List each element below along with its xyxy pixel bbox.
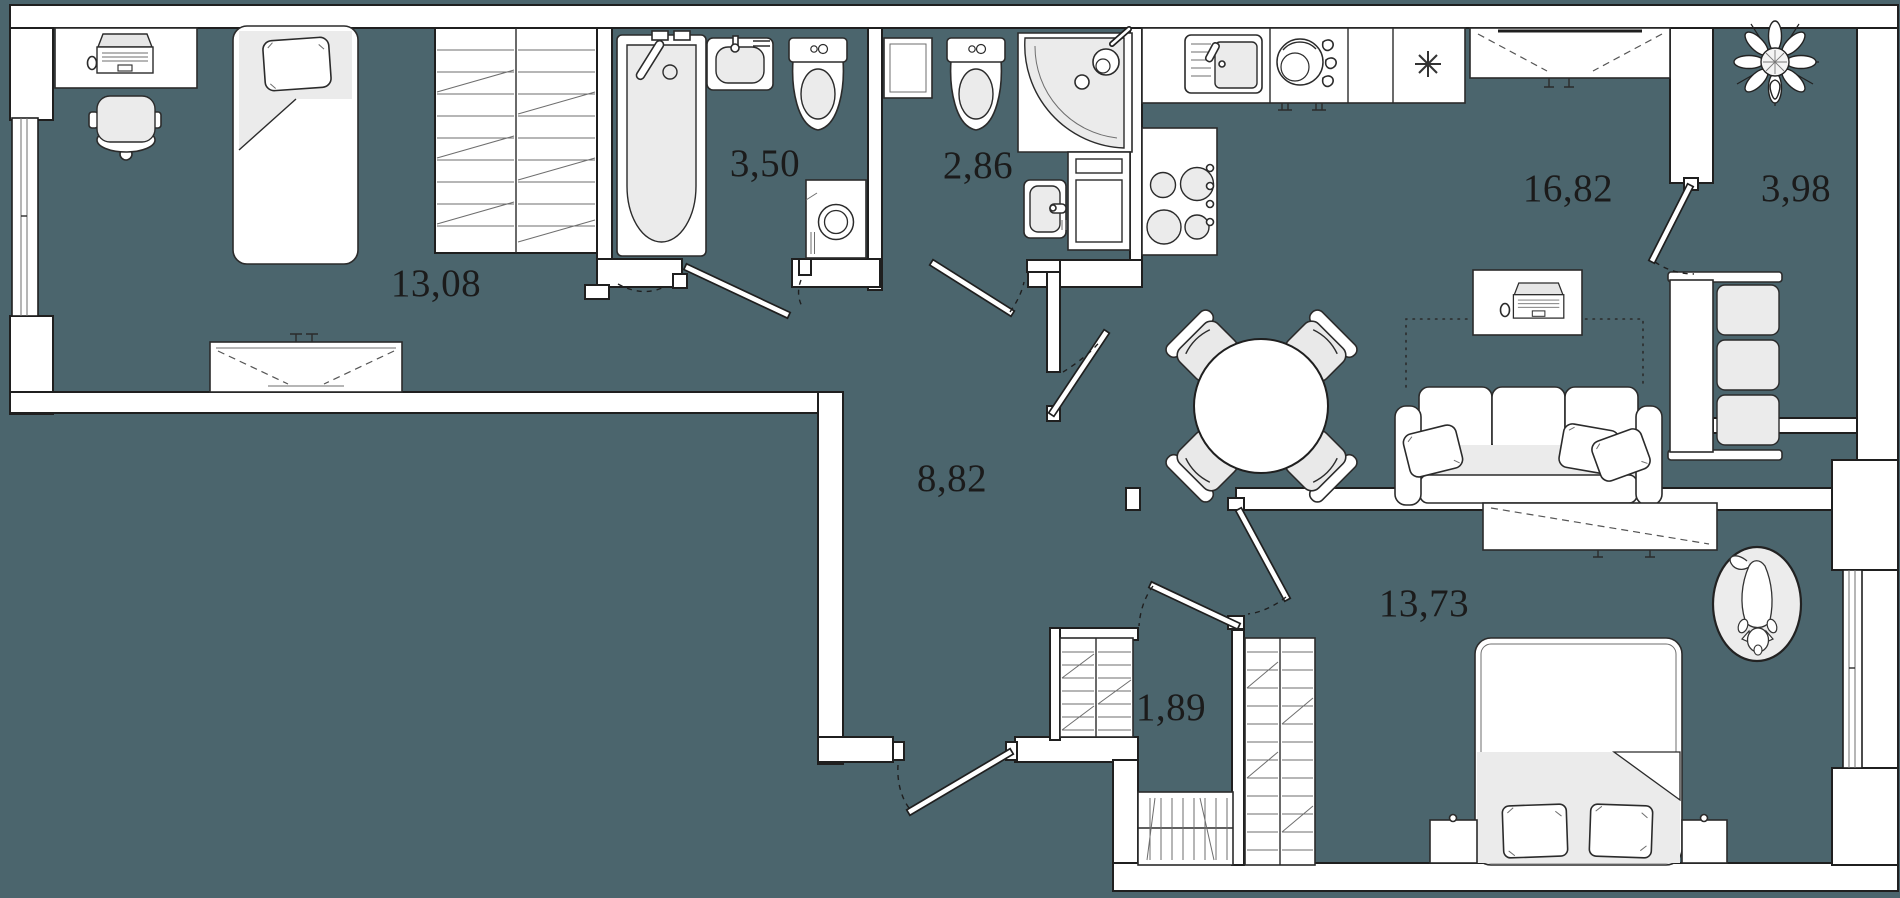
small-washbasin (1024, 180, 1066, 238)
dog-on-oval-rug-icon (1713, 547, 1801, 661)
washing-machine (806, 180, 866, 258)
cooktop (1142, 128, 1217, 255)
wall-right-block-lower (1832, 768, 1898, 865)
wardrobe-vertical (1138, 792, 1233, 865)
wall-entry-right (1015, 737, 1138, 762)
wall-cabinet-dashed (1470, 28, 1670, 87)
nightstand-right (1682, 815, 1727, 864)
door-jamb-cap (673, 274, 687, 288)
door-balcony (1653, 188, 1694, 274)
office-chair (89, 96, 161, 160)
wall-hall-stub-h (1027, 260, 1060, 272)
laptop-icon (1513, 283, 1563, 318)
wall-hall-stub-v (1047, 272, 1060, 372)
dishwasher-icon (1277, 39, 1336, 86)
area-label-bedroom-left: 13,08 (391, 262, 481, 305)
storage-cabinet (884, 38, 932, 98)
pillow-icon (262, 37, 331, 91)
wall-hall-left (818, 392, 843, 764)
wall-right-block-upper (1832, 460, 1898, 570)
kitchen-sink-icon (1185, 35, 1262, 93)
entrance-door (898, 753, 1009, 811)
area-label-bathroom: 3,50 (730, 142, 800, 185)
wall-entry-left (818, 737, 893, 762)
wall-left-upper (10, 28, 53, 120)
potted-plant-icon (1734, 21, 1819, 106)
balcony-bench (1668, 272, 1782, 460)
mouse-icon (88, 57, 97, 70)
bathtub (617, 31, 706, 256)
tv-stand (1483, 503, 1717, 557)
area-label-bedroom-right: 13,73 (1379, 582, 1469, 625)
area-label-wc: 2,86 (943, 144, 1013, 187)
area-label-hallway: 8,82 (917, 457, 987, 500)
corner-shower (1018, 29, 1132, 152)
door-jamb-cap (585, 285, 609, 299)
single-bed (233, 26, 358, 264)
wardrobe-rail (1060, 638, 1133, 737)
door-jamb-cap (799, 259, 811, 275)
window-left (12, 118, 38, 316)
dining-set (1163, 307, 1360, 505)
door-jamb-cap (893, 742, 904, 760)
door-bedroom-right (1240, 512, 1286, 614)
mouse-icon (1501, 304, 1510, 317)
wall-bath-bottom-a (597, 259, 682, 287)
sofa-three-seat (1395, 387, 1662, 505)
wall-bottom (1113, 863, 1898, 891)
kitchen-counter (1142, 28, 1465, 110)
area-label-living-kitchen: 16,82 (1523, 167, 1613, 210)
wall-bath-divider (868, 28, 882, 290)
desk-with-laptop-left (55, 28, 197, 88)
wall-bedroom-bottom (10, 392, 843, 413)
wall-right-outer (1857, 28, 1898, 863)
wall-top (10, 5, 1898, 28)
wardrobe-shelves (1245, 638, 1315, 865)
toilet-icon (789, 38, 847, 130)
door-closet (1139, 586, 1236, 626)
wall-closet-left (1050, 628, 1060, 740)
nightstand-left (1430, 815, 1477, 864)
pillow-icon (1502, 804, 1568, 858)
laptop-icon (97, 34, 153, 73)
floor-plan-drawing: 13,08 3,50 2,86 8,82 16,82 3,98 13,73 1,… (0, 0, 1900, 898)
round-table-icon (1194, 339, 1328, 473)
dresser (210, 334, 402, 392)
washbasin (707, 36, 773, 90)
area-label-balcony: 3,98 (1761, 167, 1831, 210)
toilet-icon (947, 38, 1005, 130)
window-right (1843, 570, 1862, 768)
built-in-wardrobe (435, 28, 597, 253)
wall-bath-left (597, 28, 612, 287)
double-bed (1475, 638, 1682, 865)
desk-with-laptop-right (1473, 270, 1582, 335)
wall-balcony-divider (1670, 28, 1713, 183)
area-label-closet: 1,89 (1136, 686, 1206, 729)
wall-closet-right (1232, 630, 1244, 865)
tall-cabinet (1068, 152, 1130, 250)
pillow-icon (1589, 804, 1653, 858)
wall-jamb (1126, 488, 1140, 510)
floor-plan: 13,08 3,50 2,86 8,82 16,82 3,98 13,73 1,… (0, 0, 1900, 898)
